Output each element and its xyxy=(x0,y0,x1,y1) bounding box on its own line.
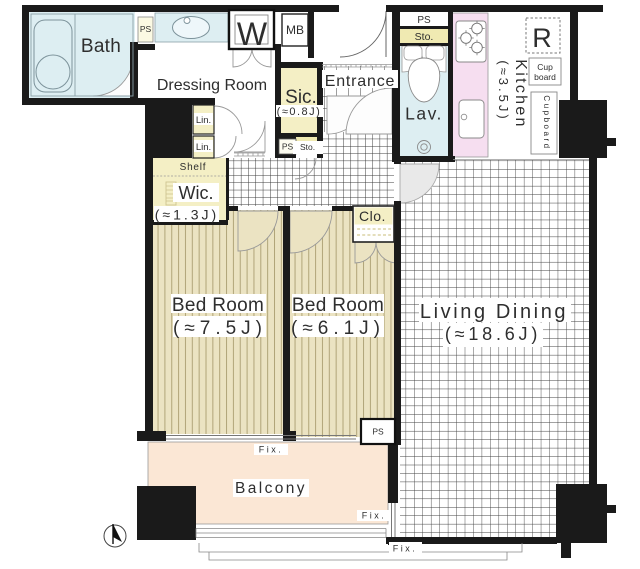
svg-text:Fix.: Fix. xyxy=(393,544,418,554)
svg-text:Bath: Bath xyxy=(81,36,121,57)
svg-text:(≈7.5J): (≈7.5J) xyxy=(173,318,267,339)
svg-text:PS: PS xyxy=(282,142,294,152)
svg-text:Fix.: Fix. xyxy=(362,511,387,521)
svg-text:Cup: Cup xyxy=(537,62,553,72)
svg-text:Balcony: Balcony xyxy=(235,480,307,497)
svg-text:(≈6.1J): (≈6.1J) xyxy=(291,318,385,339)
svg-text:board: board xyxy=(534,72,556,82)
svg-text:Living Dining: Living Dining xyxy=(420,301,568,323)
svg-text:PS: PS xyxy=(140,24,152,34)
svg-text:R: R xyxy=(532,23,552,53)
svg-text:(≈1.3J): (≈1.3J) xyxy=(155,207,219,223)
svg-text:Bed Room: Bed Room xyxy=(292,295,384,316)
svg-text:Clo.: Clo. xyxy=(359,208,386,224)
svg-text:Cupboard: Cupboard xyxy=(542,95,551,150)
svg-text:(≈3.5J): (≈3.5J) xyxy=(496,60,511,121)
svg-text:Sic.: Sic. xyxy=(285,87,317,108)
svg-text:Kitchen: Kitchen xyxy=(512,59,529,128)
svg-text:Wic.: Wic. xyxy=(179,183,214,203)
svg-text:Lin.: Lin. xyxy=(196,115,211,126)
svg-text:Fix.: Fix. xyxy=(259,445,284,455)
svg-text:PS: PS xyxy=(372,427,384,437)
svg-text:Dressing Room: Dressing Room xyxy=(157,77,267,94)
svg-text:Sto.: Sto. xyxy=(415,31,434,43)
svg-text:Bed Room: Bed Room xyxy=(172,295,264,316)
svg-text:Entrance: Entrance xyxy=(325,73,395,90)
svg-text:Sto.: Sto. xyxy=(300,142,315,152)
svg-text:(≈18.6J): (≈18.6J) xyxy=(445,324,541,344)
svg-text:W: W xyxy=(237,16,268,52)
svg-text:MB: MB xyxy=(286,23,304,37)
svg-text:PS: PS xyxy=(417,15,431,26)
svg-text:Shelf: Shelf xyxy=(180,162,207,173)
svg-text:Lav.: Lav. xyxy=(405,104,443,124)
svg-text:Lin.: Lin. xyxy=(196,142,211,153)
svg-text:(≈0.8J): (≈0.8J) xyxy=(277,106,322,118)
